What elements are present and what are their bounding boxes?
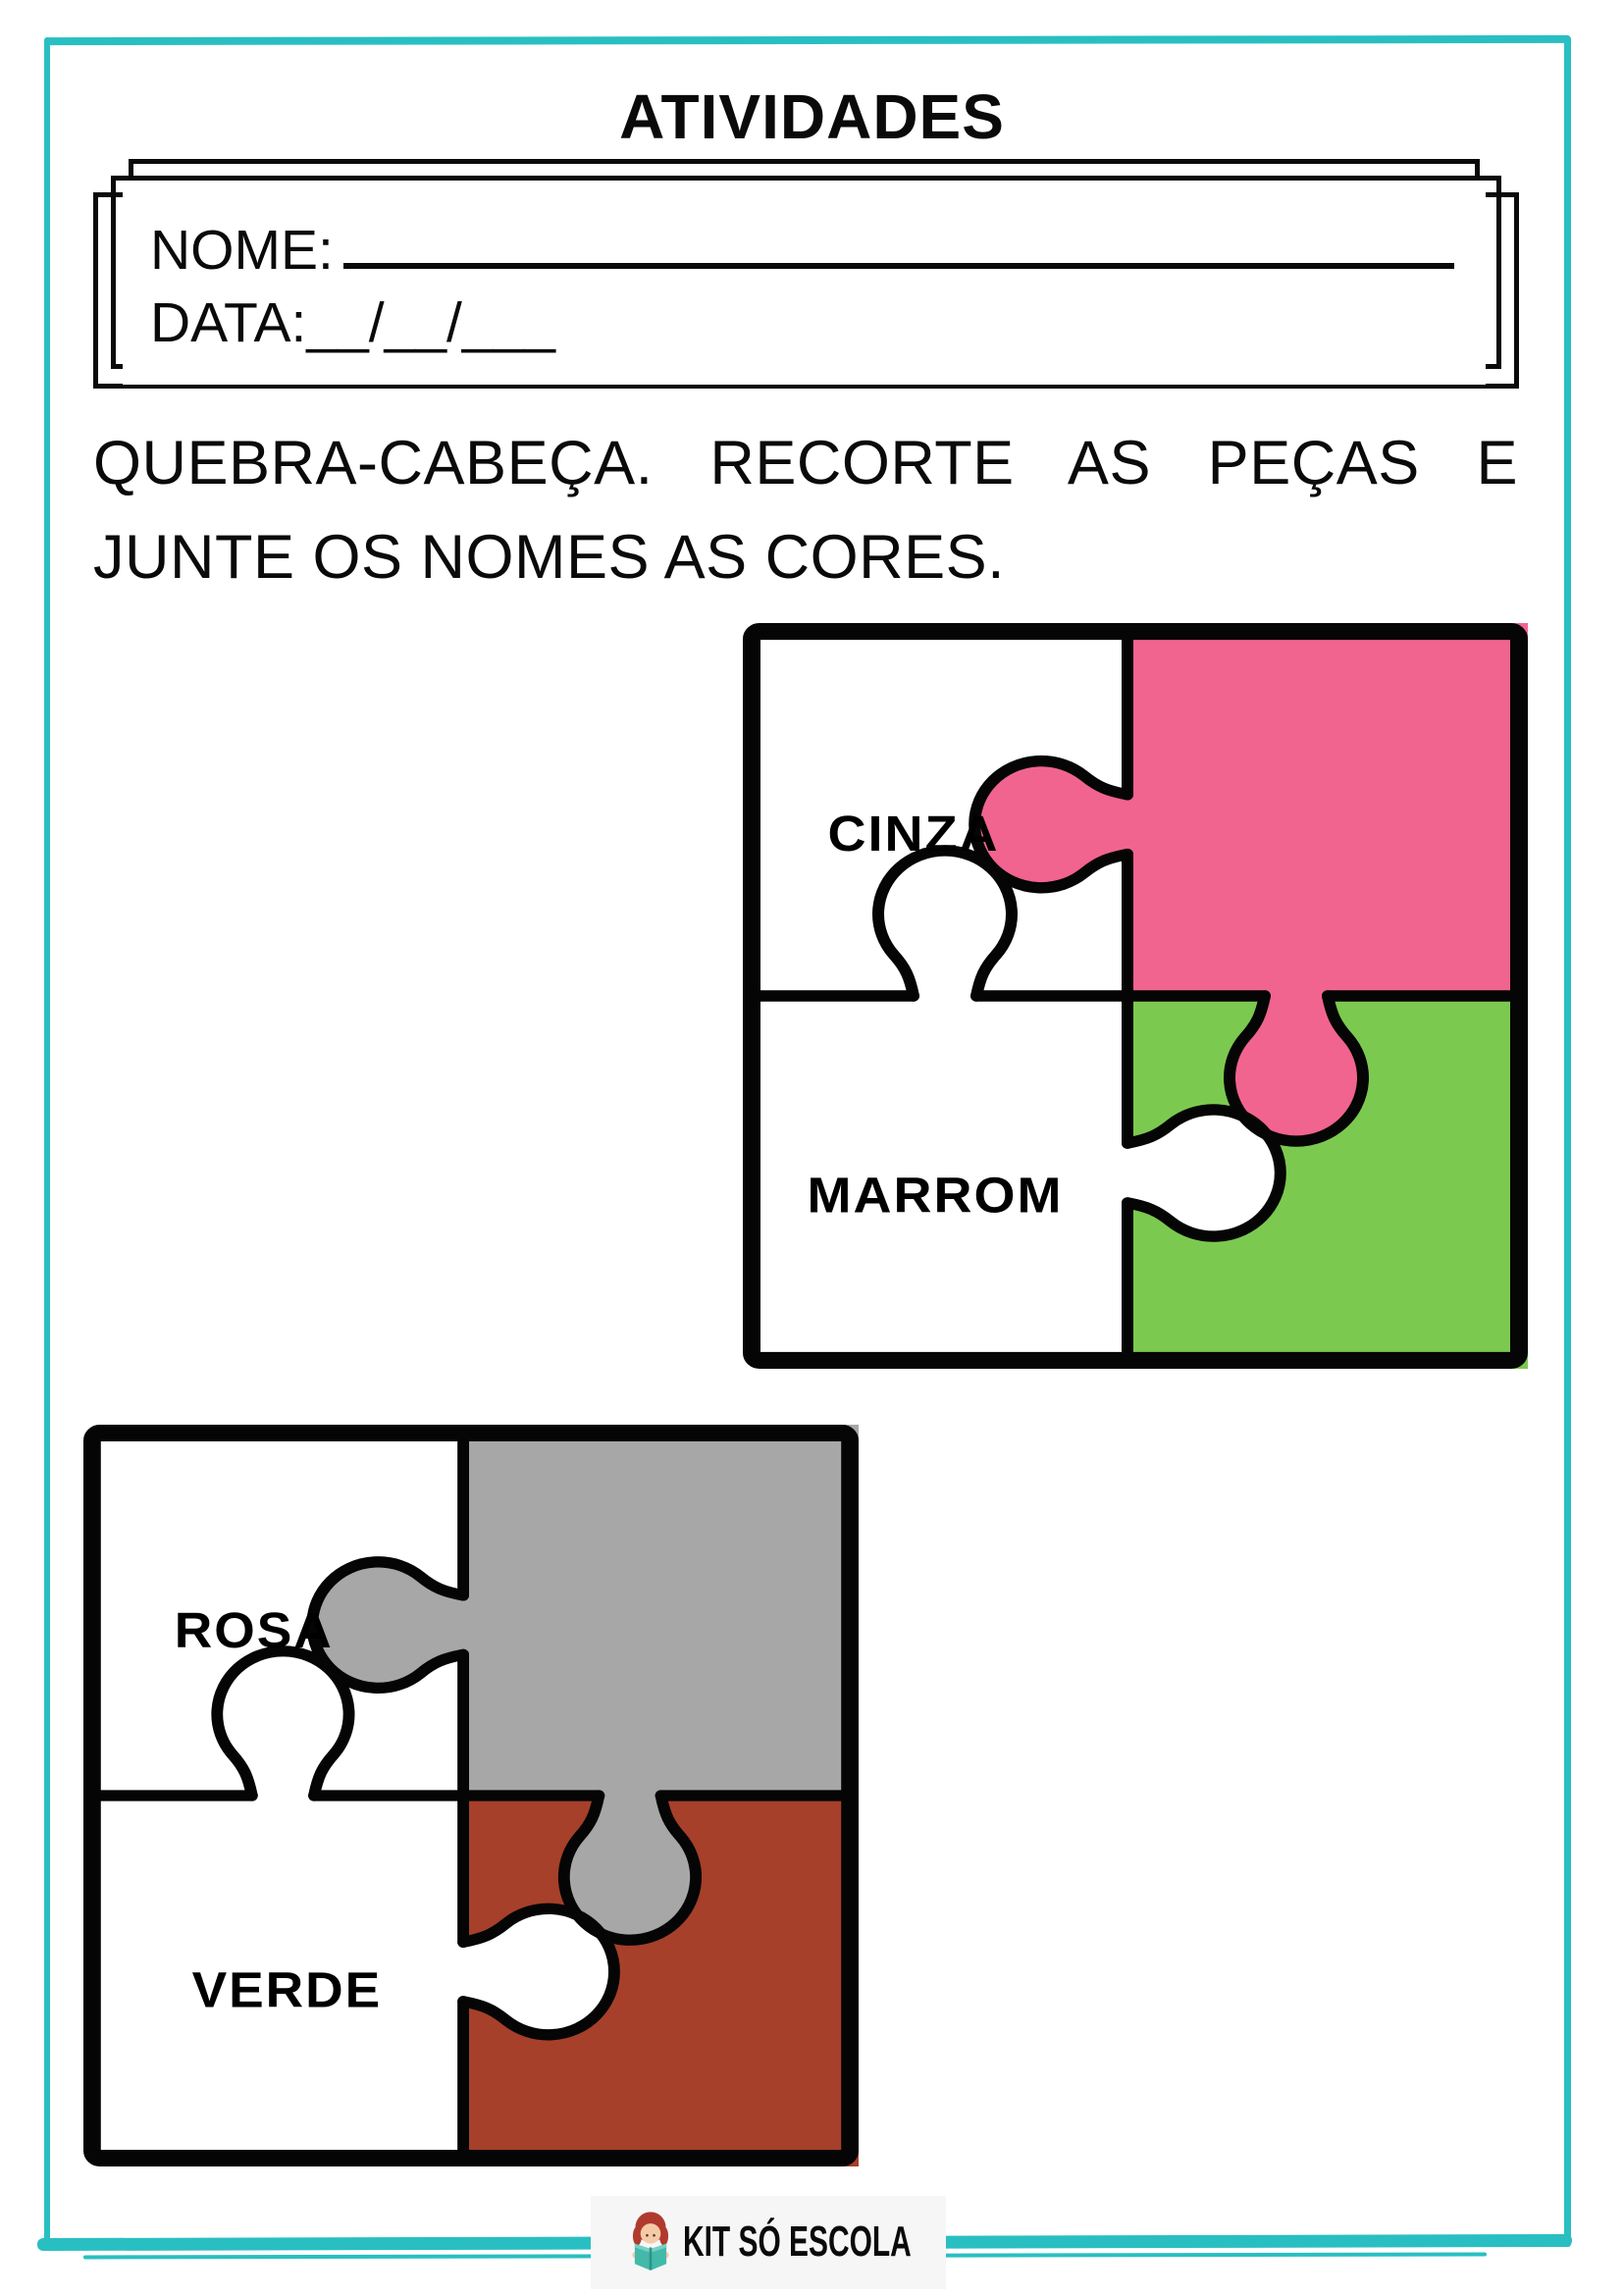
name-row: NOME:: [150, 206, 1458, 287]
date-row: DATA:__/__/___: [150, 287, 1458, 359]
date-blanks[interactable]: __/__/___: [306, 287, 555, 359]
puzzle2-label-bottom-left: VERDE: [192, 1962, 383, 2018]
puzzle1-piece-top-right: [1127, 623, 1528, 996]
instructions-line2: JUNTE OS NOMES AS CORES.: [93, 510, 1518, 604]
brand-logo: KIT SÓ ESCOLA: [591, 2196, 946, 2289]
puzzle1-label-top-left: CINZA: [828, 806, 1000, 861]
border-top: [44, 35, 1571, 45]
instructions: QUEBRA-CABEÇA. RECORTE AS PEÇAS E JUNTE …: [93, 416, 1518, 604]
border-left: [44, 37, 50, 2247]
puzzle2-label-top-left: ROSA: [175, 1603, 334, 1659]
puzzle1-label-bottom-left: MARROM: [808, 1168, 1064, 1224]
date-label: DATA:: [150, 287, 306, 359]
worksheet-page: ATIVIDADES NOME: DATA:__/__/___ QUEBRA-C…: [0, 0, 1624, 2296]
page-title: ATIVIDADES: [0, 80, 1624, 153]
child-reading-book-icon: [622, 2206, 679, 2276]
brand-name: KIT SÓ ESCOLA: [683, 2218, 912, 2267]
name-date-content: NOME: DATA:__/__/___: [123, 181, 1486, 385]
border-right: [1564, 37, 1571, 2247]
puzzle-1: CINZA MARROM: [743, 623, 1528, 1369]
name-date-box: NOME: DATA:__/__/___: [93, 159, 1519, 391]
puzzle2-piece-top-right: [463, 1425, 859, 1796]
puzzle-2: ROSA VERDE: [83, 1425, 859, 2166]
instructions-line1: QUEBRA-CABEÇA. RECORTE AS PEÇAS E: [93, 416, 1518, 510]
name-label: NOME:: [150, 214, 334, 287]
name-write-line[interactable]: [343, 206, 1454, 269]
